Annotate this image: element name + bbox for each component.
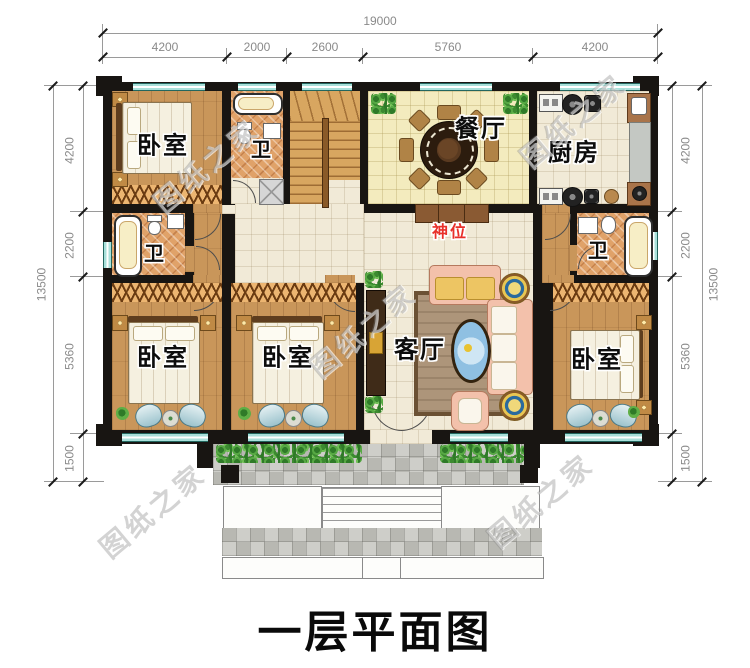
dim-ext-line	[70, 276, 103, 277]
walkway-center-stone	[362, 557, 401, 579]
bathtub-basin	[238, 97, 274, 110]
bathtub	[624, 216, 653, 277]
door-gap	[185, 246, 194, 272]
room-label-bedroom-bottom-left: 卧室	[137, 338, 189, 373]
window	[302, 83, 352, 91]
plant-icon	[628, 406, 640, 418]
toilet	[148, 221, 161, 235]
dim-top-seg-1: 2000	[227, 41, 287, 54]
window	[450, 433, 508, 442]
watermark: 图纸之家	[90, 454, 214, 567]
door-gap	[193, 275, 222, 283]
dim-ext-line	[70, 211, 103, 212]
toilet	[601, 216, 616, 234]
plant-icon	[371, 93, 396, 114]
dim-right-seg-2: 5360	[680, 335, 693, 379]
stool	[604, 189, 619, 204]
bathtub-basin	[119, 221, 137, 269]
stove-burner	[562, 187, 583, 207]
door-gap	[545, 204, 569, 213]
stove-burner	[632, 186, 647, 201]
nightstand	[236, 315, 252, 331]
sofa-cushion	[491, 306, 517, 334]
window	[238, 83, 276, 91]
room-label-bedroom-top-left: 卧室	[137, 126, 189, 161]
planter-box	[223, 486, 322, 529]
entry-steps	[322, 487, 442, 529]
loveseat-cushion	[435, 277, 464, 300]
wardrobe	[231, 283, 356, 302]
window	[565, 433, 642, 442]
dim-line-right-total	[702, 86, 703, 482]
dim-line-left-total	[53, 86, 54, 482]
coffee-table	[451, 319, 491, 383]
side-table	[592, 410, 609, 427]
dim-top-seg-0: 4200	[135, 41, 195, 54]
lounge-cushion	[458, 398, 482, 424]
dining-chair	[437, 180, 461, 195]
door-gap	[569, 245, 577, 271]
dim-line-top-segments	[103, 57, 658, 58]
nightstand	[200, 315, 216, 331]
stair-winders	[290, 91, 360, 121]
window	[248, 433, 344, 442]
sofa-cushion	[491, 362, 517, 390]
dining-chair	[399, 138, 414, 162]
plan-title: 一层平面图	[0, 596, 750, 660]
terrace-plants	[440, 444, 524, 463]
room-label-bath-right: 卫	[588, 235, 610, 264]
dim-top-total: 19000	[330, 15, 430, 28]
room-label-bath-left: 卫	[144, 238, 166, 267]
dim-top-seg-4: 4200	[565, 41, 625, 54]
window	[133, 83, 205, 91]
dim-top-seg-2: 2600	[295, 41, 355, 54]
loveseat-cushion	[466, 277, 495, 300]
coffee-table-decor	[464, 344, 472, 352]
dim-right-seg-1: 2200	[680, 224, 693, 268]
dim-left-seg-0: 4200	[64, 129, 77, 173]
dim-left-seg-2: 5360	[64, 335, 77, 379]
wardrobe	[553, 283, 649, 302]
window	[103, 242, 112, 268]
wardrobe	[112, 283, 222, 302]
washer	[259, 179, 284, 205]
dim-left-total: 13500	[36, 263, 49, 307]
rattan-chair	[499, 273, 530, 304]
window	[122, 433, 208, 442]
shrine-label: 神位	[432, 218, 468, 242]
sofa-cushion	[491, 334, 517, 362]
dim-right-seg-0: 4200	[680, 129, 693, 173]
door-gap	[325, 275, 355, 283]
plant-icon	[238, 407, 251, 420]
porch-wall-right	[524, 430, 540, 468]
dim-line-right-segments	[672, 86, 673, 482]
stair-landing	[328, 180, 360, 204]
bathtub	[114, 215, 142, 277]
room-label-bedroom-bottom-right: 卧室	[571, 340, 623, 375]
dim-right-seg-3: 1500	[680, 437, 693, 481]
dim-line-left-segments	[83, 86, 84, 482]
room-label-dining: 餐厅	[455, 109, 507, 144]
window	[420, 83, 492, 91]
side-table	[162, 410, 179, 427]
kitchen-sink	[631, 97, 647, 115]
kitchen-appliance	[539, 188, 563, 205]
kitchen-counter	[629, 122, 651, 183]
porch-post	[221, 465, 239, 483]
plant-icon	[365, 396, 383, 413]
dim-top-seg-3: 5760	[418, 41, 478, 54]
stove-grill	[584, 189, 599, 204]
rattan-chair	[499, 390, 530, 421]
door-gap	[193, 204, 222, 213]
hall-floor	[235, 204, 364, 283]
entry-door-gap	[370, 430, 432, 444]
dim-left-seg-1: 2200	[64, 224, 77, 268]
nightstand	[112, 315, 128, 331]
door-gap	[548, 275, 574, 283]
shower-tray	[578, 217, 598, 234]
dim-left-seg-3: 1500	[64, 437, 77, 481]
terrace-plants	[216, 444, 362, 463]
side-table	[285, 410, 302, 427]
room-label-living: 客厅	[394, 330, 446, 365]
nightstand	[636, 315, 652, 330]
nightstand	[112, 172, 128, 187]
door-gap	[222, 205, 235, 214]
stair-rail	[322, 118, 329, 208]
floor-plan: 19000 4200 2000 2600 5760 4200 4200 2200…	[0, 0, 750, 668]
dim-right-total: 13500	[708, 263, 721, 307]
bathtub-basin	[629, 222, 648, 269]
plant-icon	[365, 271, 383, 288]
dim-line-top-total	[103, 33, 658, 34]
plant-icon	[116, 407, 129, 420]
